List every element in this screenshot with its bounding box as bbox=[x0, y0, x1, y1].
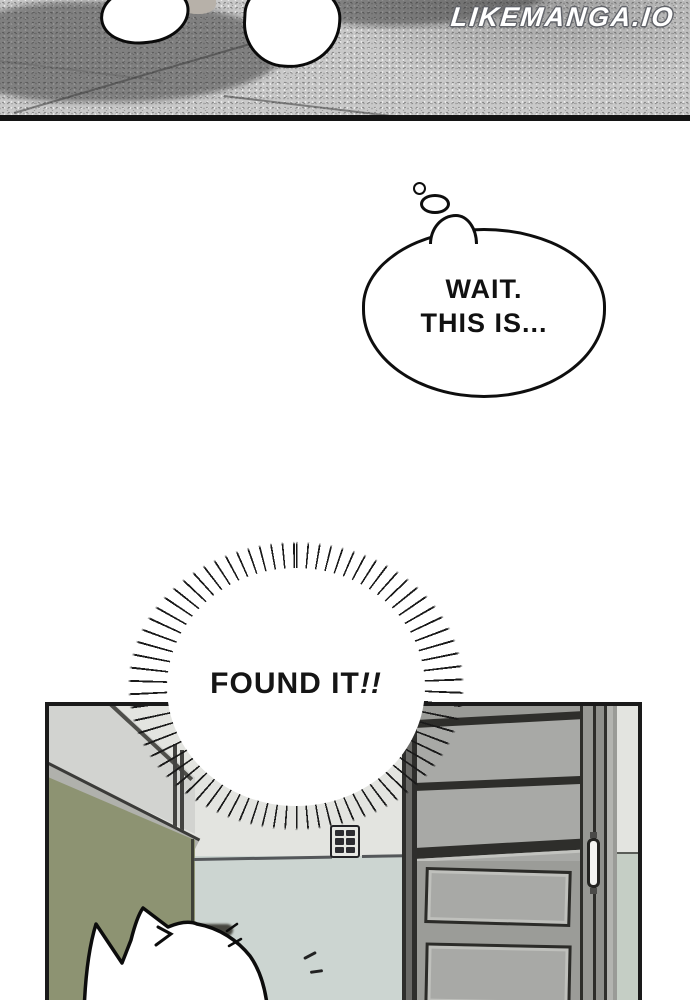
cat-character bbox=[80, 900, 280, 1000]
top-panel: LIKEMANGA.IO bbox=[0, 0, 690, 121]
door-handle bbox=[587, 838, 600, 888]
side-wall-strip bbox=[617, 706, 642, 1000]
door-rail bbox=[417, 776, 580, 791]
door-inset-panel-2 bbox=[424, 942, 571, 1000]
door-handle-mount bbox=[590, 888, 597, 894]
side-wall-lower bbox=[617, 852, 642, 1000]
thought-bubble-bump bbox=[429, 214, 478, 244]
burst-text: FOUND IT!! bbox=[128, 667, 464, 701]
bubble-line-2: THIS IS... bbox=[362, 306, 606, 340]
site-watermark: LIKEMANGA.IO bbox=[449, 2, 676, 33]
burst-exclamation: !! bbox=[360, 667, 382, 700]
cat-head-outline bbox=[84, 908, 268, 1000]
thought-dot-small bbox=[413, 182, 426, 195]
thought-bubble-text: WAIT. THIS IS... bbox=[362, 272, 606, 340]
manga-page: LIKEMANGA.IO WAIT. THIS IS... bbox=[0, 0, 690, 1000]
thought-dot-large bbox=[420, 194, 450, 214]
wall-vent-grille bbox=[330, 825, 360, 858]
bubble-line-1: WAIT. bbox=[362, 272, 606, 306]
door-inset-panel-1 bbox=[424, 867, 572, 927]
